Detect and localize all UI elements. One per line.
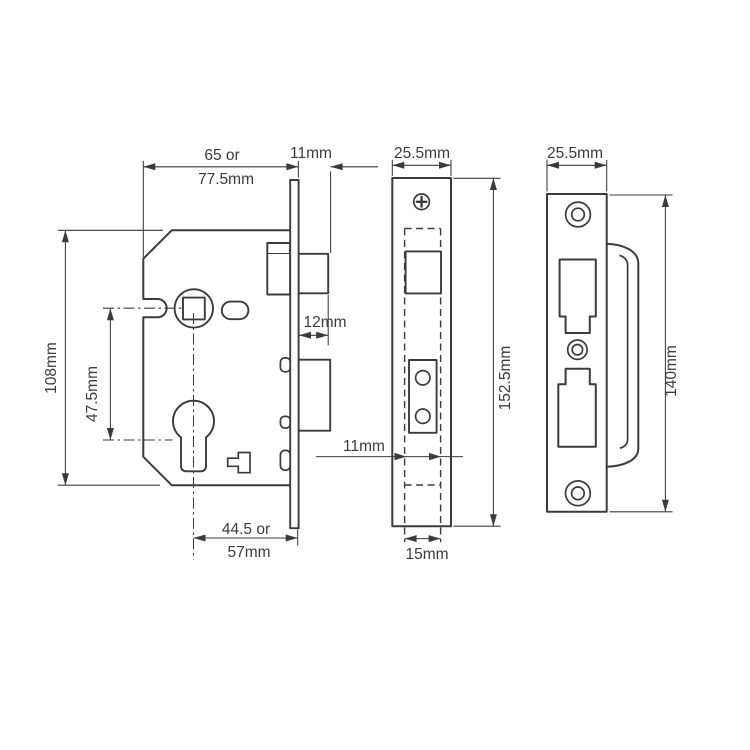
dim-faceplate-clearance-label: 11mm — [290, 145, 332, 162]
deadbolt-cutout — [558, 369, 596, 447]
dim-backset-label-2: 57mm — [227, 544, 270, 561]
mortice-lock-technical-drawing: 65 or 77.5mm 11mm 12mm 108mm 47.5mm 44.5… — [0, 0, 750, 750]
faceplate-lugs — [280, 358, 290, 470]
dim-bolt-width-label: 11mm — [343, 438, 385, 455]
strike-plate-lip — [607, 244, 639, 467]
dim-case-width-label: 15mm — [405, 546, 448, 563]
dim-case-height-label: 108mm — [43, 342, 60, 394]
phillips-screw-icon — [414, 194, 430, 210]
strike-plate-view: 25.5mm 140mm — [547, 145, 680, 512]
oval-fixing-hole — [222, 302, 249, 320]
screw-hole-top — [566, 202, 591, 227]
dim-latch-projection-label: 12mm — [303, 314, 346, 331]
deadbolt-roller-pin-bottom — [416, 409, 430, 423]
dim-faceplate-width-label: 25.5mm — [394, 145, 450, 162]
deadbolt-side — [299, 360, 331, 431]
cylinder-retainer-tab — [228, 453, 250, 473]
dim-strike-height-label: 140mm — [663, 345, 680, 397]
faceplate-outline — [392, 178, 451, 526]
faceplate-edge — [290, 180, 298, 528]
extension-lines — [392, 160, 500, 526]
dim-case-depth-label-2: 77.5mm — [198, 171, 254, 188]
dim-backset-label-1: 44.5 or — [222, 521, 270, 538]
dim-case-depth-label-1: 65 or — [204, 147, 239, 164]
faceplate-front-view: 25.5mm 152.5mm 11mm 15mm — [316, 145, 514, 563]
latch-bolt-front — [406, 251, 441, 293]
dim-strike-width-label: 25.5mm — [547, 145, 603, 162]
drawing-canvas: 65 or 77.5mm 11mm 12mm 108mm 47.5mm 44.5… — [0, 0, 750, 750]
latch-cutout — [560, 260, 596, 334]
dim-centres-label: 47.5mm — [84, 366, 101, 422]
screw-hole-bottom — [566, 481, 591, 506]
dim-faceplate-height-label: 152.5mm — [497, 346, 514, 411]
deadbolt-front — [409, 360, 437, 433]
lock-case-side-view: 65 or 77.5mm 11mm 12mm 108mm 47.5mm 44.5… — [43, 145, 378, 561]
pin-hole-middle — [568, 340, 587, 359]
deadbolt-roller-pin-top — [416, 371, 430, 385]
